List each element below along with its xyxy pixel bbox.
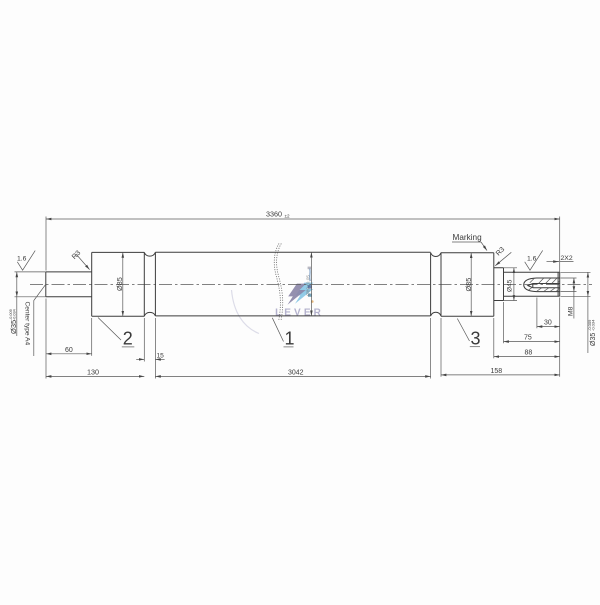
svg-text:158: 158 — [491, 368, 503, 375]
svg-text:Ø45: Ø45 — [507, 279, 514, 292]
svg-text:3360: 3360 — [266, 210, 282, 219]
svg-text:Marking: Marking — [453, 233, 483, 242]
svg-text:3: 3 — [471, 328, 481, 348]
svg-text:1.6: 1.6 — [17, 256, 27, 263]
svg-text:Ø35: Ø35 — [590, 333, 597, 346]
svg-text:M8: M8 — [567, 306, 574, 316]
svg-text:15: 15 — [157, 353, 165, 360]
svg-text:Ø85: Ø85 — [115, 277, 124, 291]
svg-text:2X2: 2X2 — [561, 255, 573, 262]
svg-text:60: 60 — [65, 347, 73, 354]
svg-text:1: 1 — [285, 329, 295, 349]
svg-text:Ø85: Ø85 — [464, 278, 473, 292]
svg-text:-0.034: -0.034 — [591, 319, 596, 331]
svg-text:88: 88 — [525, 350, 533, 357]
svg-text:75: 75 — [524, 335, 532, 342]
svg-text:Ø89±0.05: Ø89±0.05 — [306, 275, 312, 296]
svg-text:-0.034: -0.034 — [13, 309, 17, 320]
svg-text:2: 2 — [123, 329, 133, 349]
svg-text:3042: 3042 — [288, 369, 304, 376]
svg-text:±2: ±2 — [285, 214, 291, 219]
svg-text:130: 130 — [87, 368, 99, 377]
svg-text:30: 30 — [544, 320, 552, 327]
svg-text:Center type A4: Center type A4 — [24, 302, 31, 346]
svg-text:Ø35: Ø35 — [9, 320, 18, 334]
